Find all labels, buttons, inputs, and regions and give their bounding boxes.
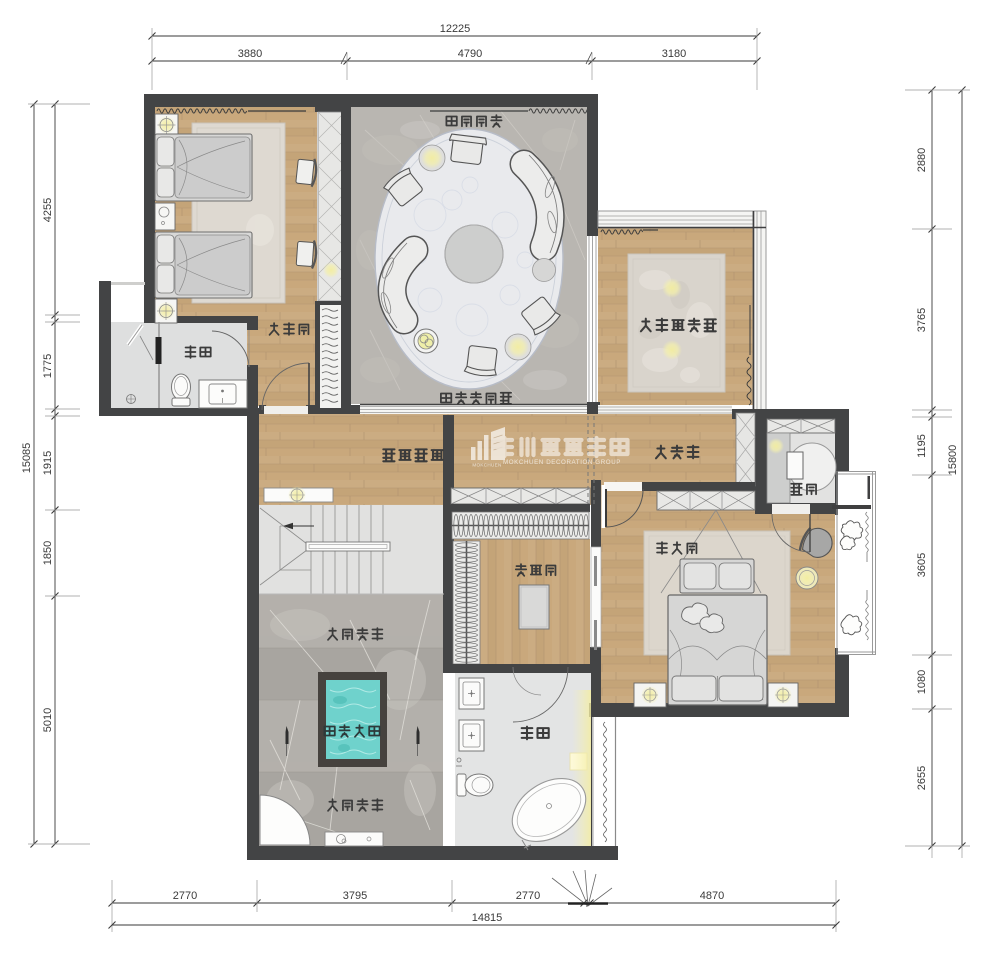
svg-text:1195: 1195 [916, 434, 928, 458]
svg-text:14815: 14815 [472, 912, 503, 924]
svg-text:2880: 2880 [916, 148, 928, 172]
svg-text:MOKCHUEN DECORATION GROUP: MOKCHUEN DECORATION GROUP [503, 459, 621, 466]
svg-text:1850: 1850 [42, 541, 54, 565]
svg-text:2770: 2770 [173, 890, 197, 902]
svg-text:4870: 4870 [700, 890, 724, 902]
svg-text:2770: 2770 [516, 890, 540, 902]
svg-text:4790: 4790 [458, 48, 482, 60]
svg-text:3605: 3605 [916, 553, 928, 577]
svg-text:2655: 2655 [916, 766, 928, 790]
svg-text:1080: 1080 [916, 670, 928, 694]
svg-text:MOKCHUEN: MOKCHUEN [472, 463, 501, 468]
svg-text:12225: 12225 [440, 23, 471, 35]
svg-text:15800: 15800 [947, 445, 959, 476]
svg-text:5010: 5010 [42, 708, 54, 732]
svg-text:4255: 4255 [42, 198, 54, 222]
svg-text:3880: 3880 [238, 48, 262, 60]
svg-text:1915: 1915 [42, 451, 54, 475]
svg-text:3180: 3180 [662, 48, 686, 60]
svg-text:3765: 3765 [916, 308, 928, 332]
svg-text:15085: 15085 [21, 443, 33, 474]
svg-text:3795: 3795 [343, 890, 367, 902]
svg-text:1775: 1775 [42, 354, 54, 378]
